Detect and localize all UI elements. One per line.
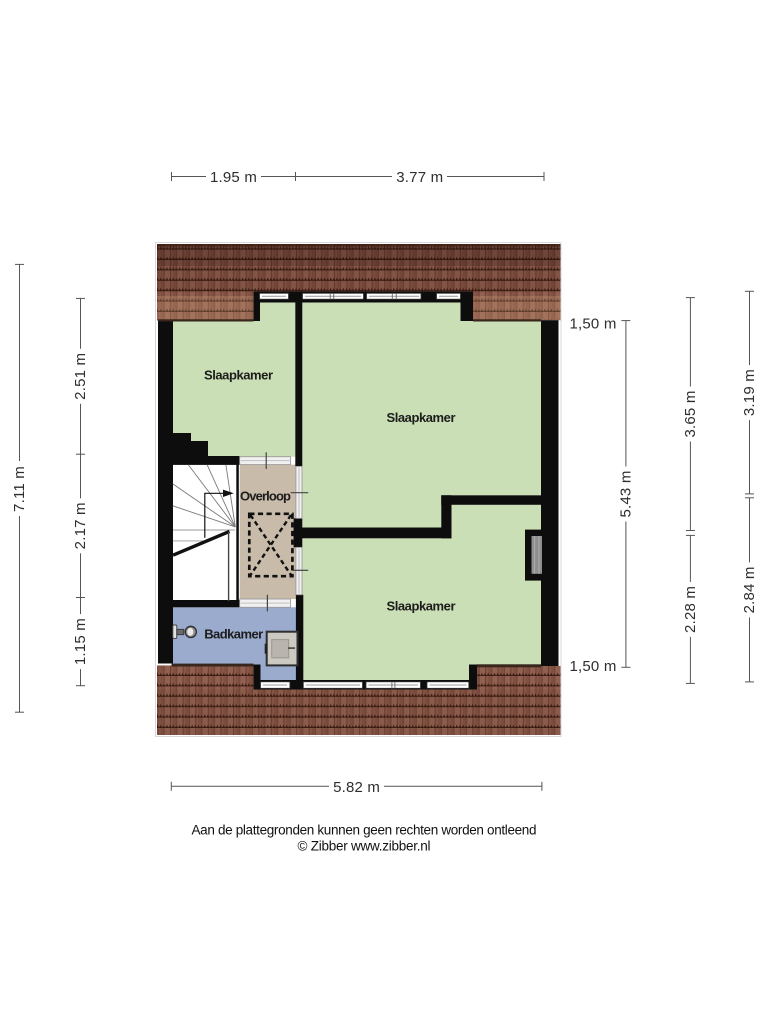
svg-text:3.77 m: 3.77 m [396, 169, 443, 186]
svg-text:2.51 m: 2.51 m [72, 353, 89, 400]
svg-text:1,50 m: 1,50 m [569, 658, 616, 675]
svg-text:Slaapkamer: Slaapkamer [204, 368, 273, 383]
svg-text:Slaapkamer: Slaapkamer [387, 599, 456, 614]
svg-text:Slaapkamer: Slaapkamer [387, 410, 456, 425]
svg-text:5.82 m: 5.82 m [333, 779, 380, 796]
svg-text:1.95 m: 1.95 m [210, 169, 257, 186]
svg-text:Overloop: Overloop [240, 489, 291, 504]
svg-text:© Zibber www.zibber.nl: © Zibber www.zibber.nl [298, 839, 431, 854]
svg-text:5.43 m: 5.43 m [617, 470, 634, 517]
svg-text:Aan de plattegronden kunnen ge: Aan de plattegronden kunnen geen rechten… [192, 823, 537, 838]
svg-text:2.84 m: 2.84 m [741, 566, 758, 613]
svg-text:1,50 m: 1,50 m [569, 316, 616, 333]
svg-text:7.11 m: 7.11 m [11, 466, 28, 512]
svg-text:2.28 m: 2.28 m [682, 586, 699, 633]
svg-text:3.65 m: 3.65 m [682, 390, 699, 437]
svg-text:3.19 m: 3.19 m [741, 369, 758, 416]
svg-text:Badkamer: Badkamer [204, 627, 263, 642]
svg-text:1.15 m: 1.15 m [72, 618, 89, 665]
svg-text:2.17 m: 2.17 m [72, 502, 89, 549]
